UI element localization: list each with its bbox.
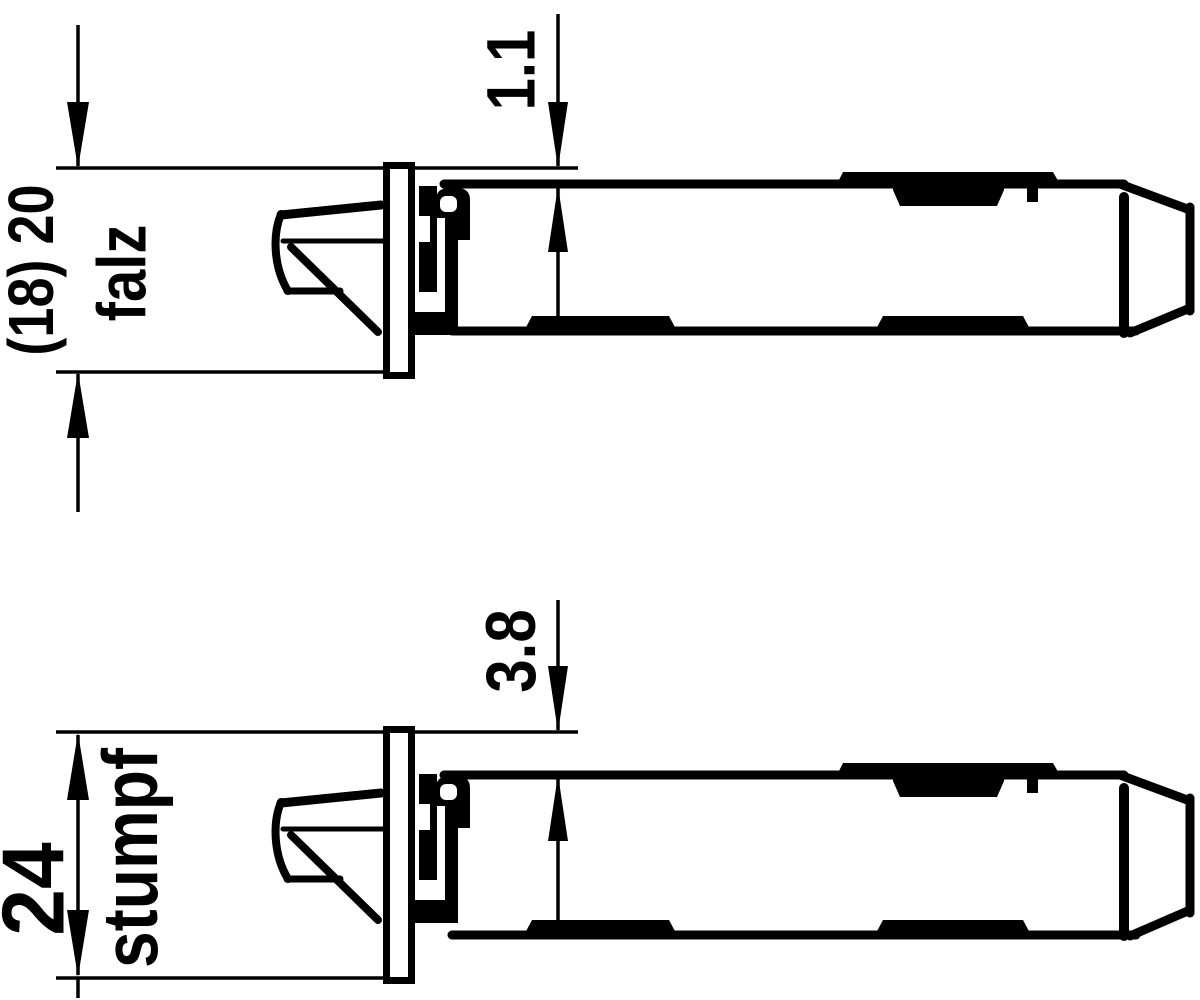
arrow-down-icon bbox=[548, 666, 568, 732]
arrow-down-icon bbox=[67, 102, 89, 168]
stumpf-spring-mechanism bbox=[414, 774, 470, 923]
falz-latch-body bbox=[444, 172, 1190, 333]
stumpf-offset-dimension bbox=[548, 600, 568, 920]
falz-faceplate bbox=[387, 166, 412, 376]
stumpf-mount-label: stumpf bbox=[88, 738, 173, 978]
falz-latch-bolt-head bbox=[276, 205, 384, 332]
stumpf-offset-value: 3.8 bbox=[475, 586, 546, 716]
falz-mount-label: falz bbox=[89, 188, 155, 358]
technical-drawing-canvas: (18) 20 falz 1.1 24 stumpf 3.8 bbox=[0, 0, 1200, 1000]
stumpf-body-pads bbox=[524, 763, 1061, 937]
stumpf-latch-bolt-head bbox=[276, 793, 384, 920]
falz-spring-mechanism bbox=[414, 186, 470, 335]
falz-view bbox=[56, 14, 1190, 512]
stumpf-faceplate bbox=[387, 730, 412, 981]
arrow-up-icon bbox=[67, 372, 89, 438]
falz-offset-value: 1.1 bbox=[476, 5, 547, 135]
stumpf-view bbox=[56, 600, 1190, 998]
stumpf-plate-width-value: 24 bbox=[0, 804, 69, 974]
falz-body-pads bbox=[524, 172, 1061, 333]
arrow-down-icon bbox=[548, 102, 568, 168]
falz-offset-dimension bbox=[548, 14, 568, 318]
latch-drawing-svg bbox=[0, 0, 1200, 1000]
falz-plate-width-value: (18) 20 bbox=[0, 120, 70, 420]
